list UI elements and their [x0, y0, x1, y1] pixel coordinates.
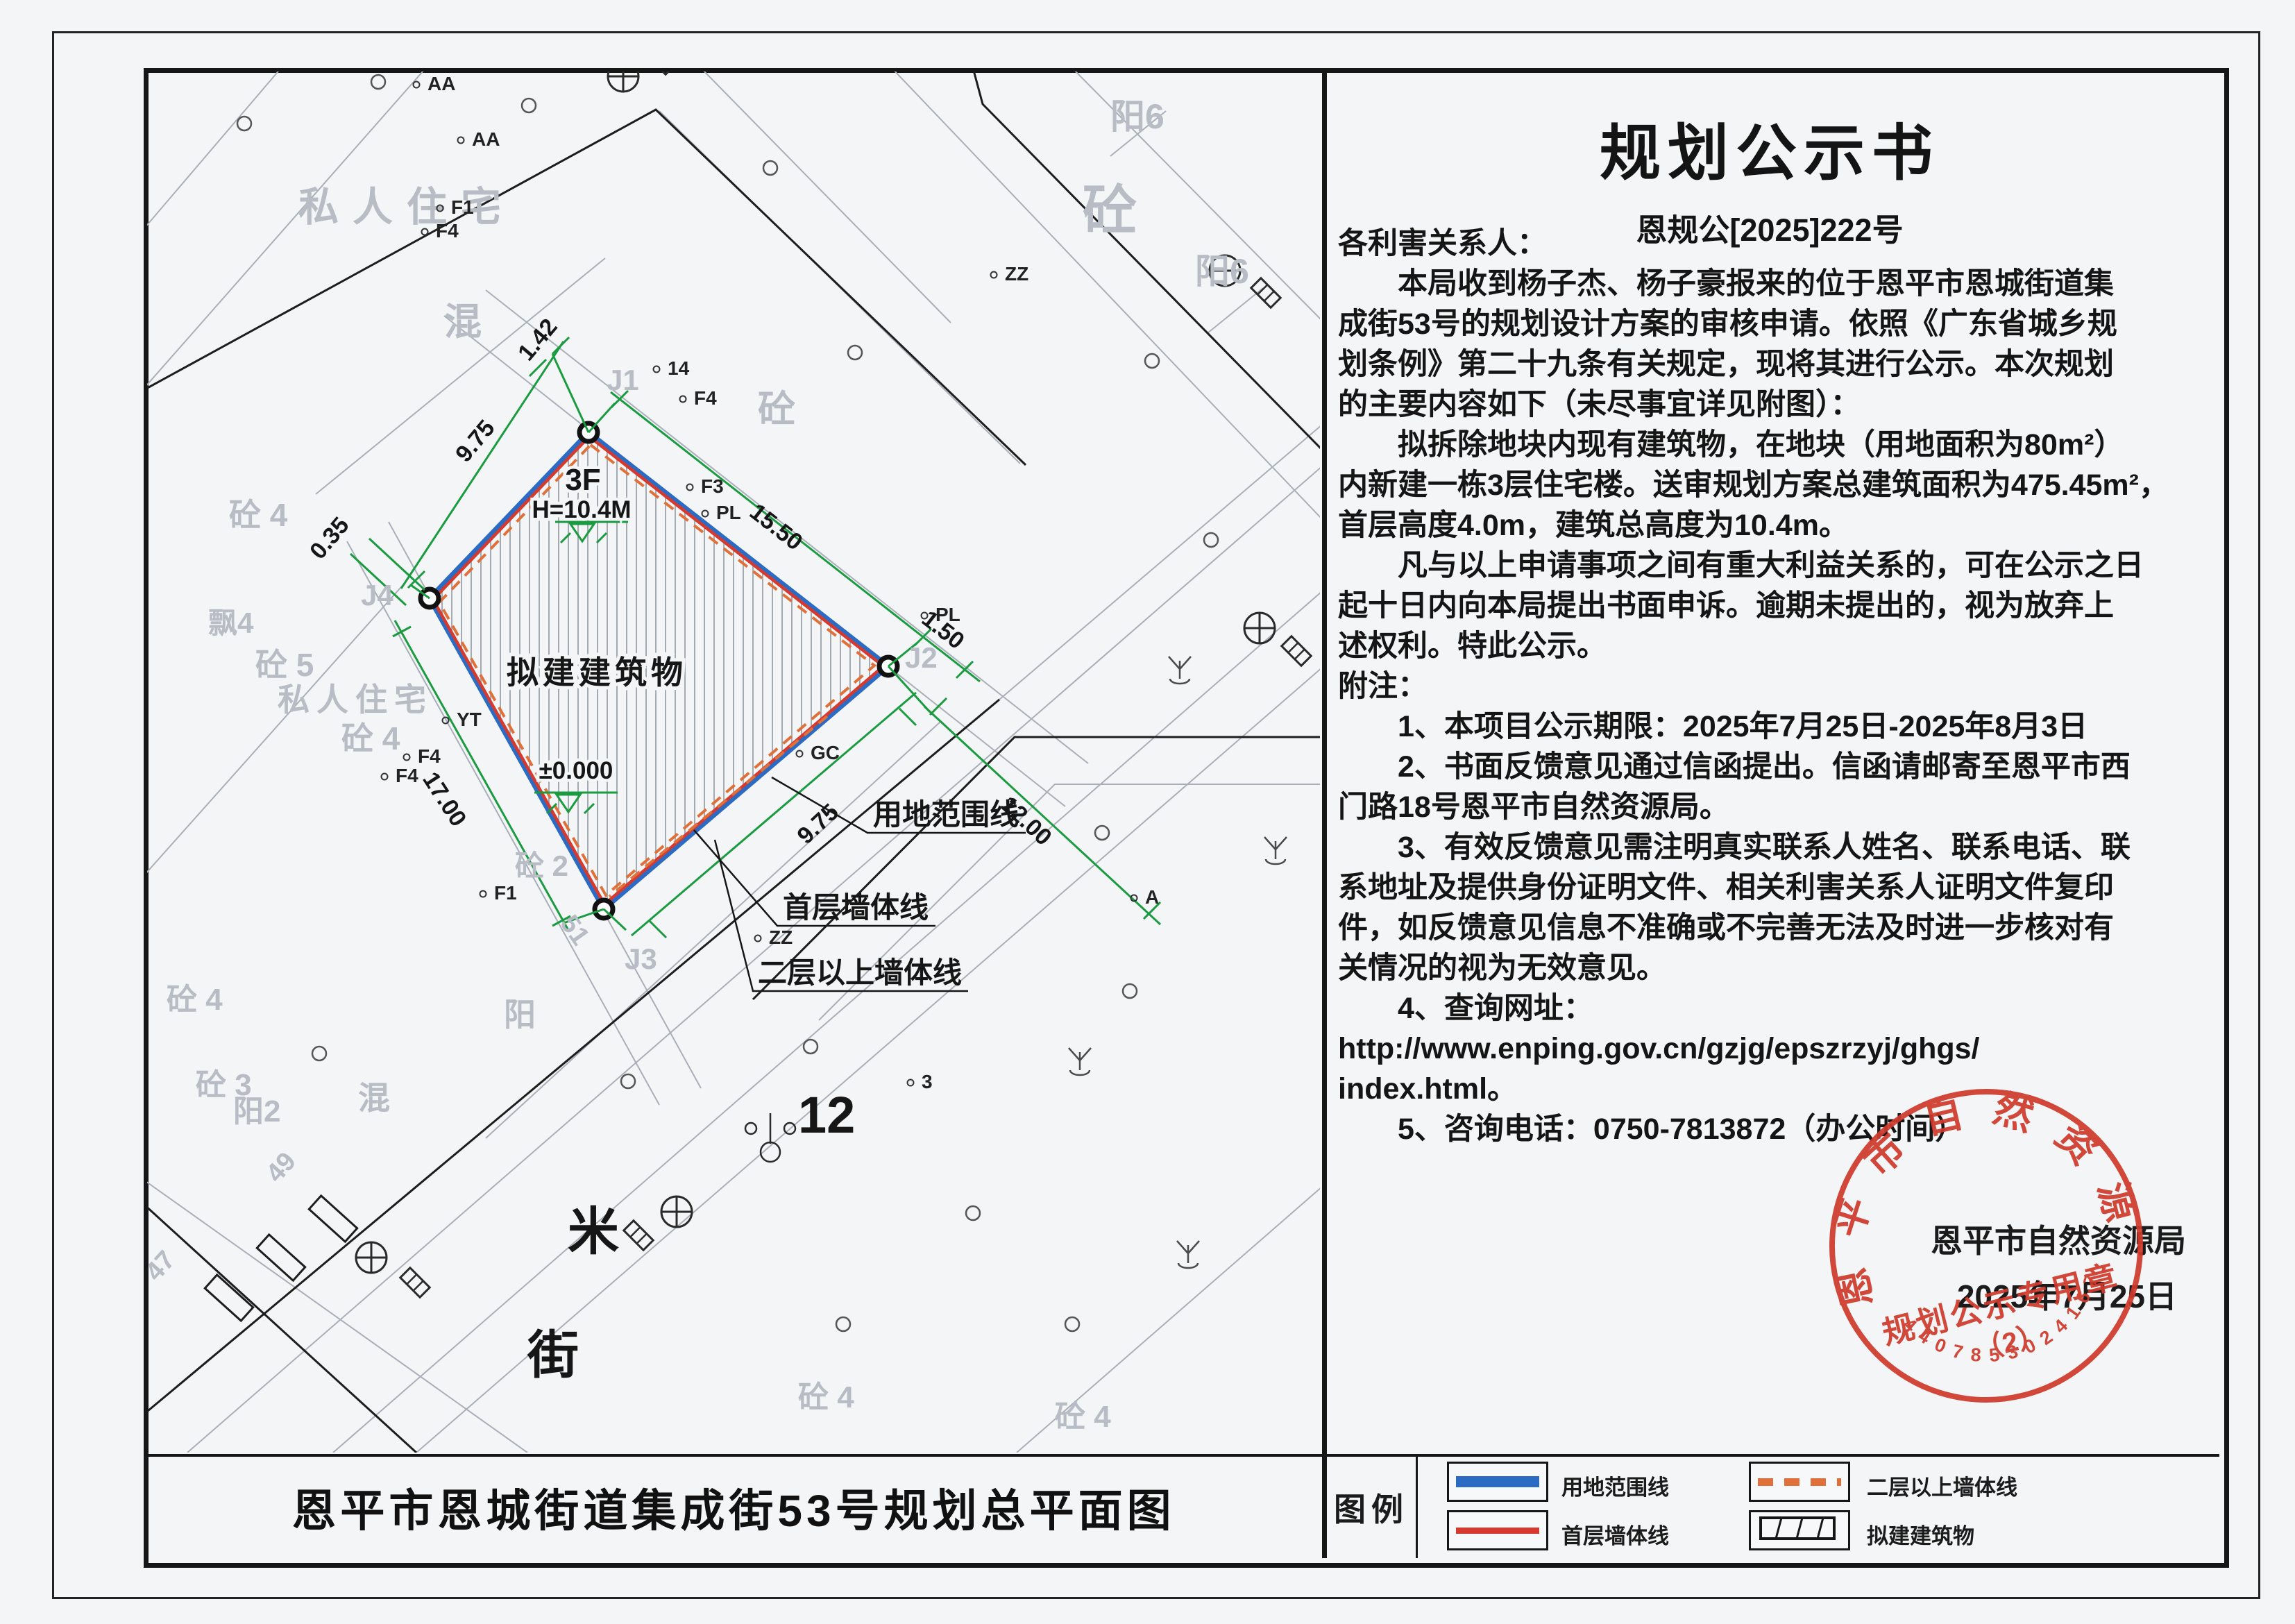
announcement-title: 规划公示书	[1336, 104, 2203, 192]
body-line: 件，如反馈意见信息不准确或不完善无法及时进一步核对有	[1338, 908, 2209, 948]
point-label: AA	[472, 128, 500, 150]
circle-icon	[522, 99, 536, 112]
manhole-icon	[661, 1196, 692, 1227]
announcement-body: 各利害关系人： 本局收到杨子杰、杨子豪报来的位于恩平市恩城街道集成街53号的规划…	[1338, 223, 2209, 1149]
point-label: F4	[396, 765, 418, 786]
body-line: 的主要内容如下（未尽事宜详见附图）：	[1338, 384, 2209, 425]
parcel-label: 私人住宅	[298, 185, 515, 230]
point-label: F4	[694, 387, 717, 409]
legend-header: 图例	[1327, 1457, 1416, 1558]
point-label: 14	[668, 357, 690, 379]
parcel-label: 49	[260, 1147, 302, 1188]
parcel-label: 私人住宅	[278, 682, 433, 718]
hatchsq-icon	[1282, 636, 1311, 666]
height-label: H=10.4M	[532, 496, 632, 523]
parcel-label: 阳2	[233, 1094, 280, 1128]
body-line: 成街53号的规划设计方案的审核申请。依照《广东省城乡规	[1338, 304, 2209, 344]
circle-icon	[763, 161, 777, 175]
point-label: F1	[451, 196, 474, 218]
circle-icon	[1065, 1317, 1079, 1331]
grass-icon	[1069, 1048, 1091, 1075]
legend-divider	[1416, 1457, 1418, 1558]
floors-label: 3F	[565, 463, 600, 497]
parcel-label: J4	[361, 579, 393, 611]
circle-icon	[1123, 984, 1137, 998]
parcel-label: 混	[444, 301, 482, 343]
hatchsq-icon	[646, 45, 675, 74]
circle-icon	[1204, 533, 1218, 547]
body-line: 3、有效反馈意见需注明真实联系人姓名、联系电话、联	[1338, 827, 2209, 868]
point-marker	[654, 366, 660, 373]
circle-icon	[1095, 826, 1109, 840]
point-label: 3	[922, 1071, 933, 1092]
map-text-label: 17.00	[417, 768, 471, 831]
body-line: 划条例》第二十九条有关规定，现将其进行公示。本次规划	[1338, 344, 2209, 384]
body-line: 首层高度4.0m，建筑总高度为10.4m。	[1338, 505, 2209, 545]
circle-icon	[804, 1040, 818, 1054]
map-text-label: 9.75	[450, 415, 500, 467]
map-text-label: 15.50	[745, 498, 807, 555]
hatchsq-icon	[624, 1221, 653, 1250]
point-marker	[991, 272, 997, 278]
grass-icon	[1177, 1241, 1199, 1268]
plan-title: 恩平市恩城街道集成街53号规划总平面图	[144, 1457, 1323, 1558]
grass-icon	[1169, 657, 1191, 684]
body-line: 起十日内向本局提出书面申诉。逾期未提出的，视为放弃上	[1338, 586, 2209, 626]
parcel-label: J3	[625, 942, 657, 975]
callout-first-floor-wall: 首层墙体线	[783, 891, 929, 924]
point-marker	[702, 511, 709, 517]
point-label: A	[1145, 886, 1159, 908]
point-marker	[480, 891, 486, 897]
map-text-label: 9.75	[793, 799, 844, 849]
point-label: GC	[811, 742, 840, 763]
point-label: PL	[935, 604, 960, 625]
point-marker	[680, 396, 686, 403]
body-line: 各利害关系人：	[1338, 223, 2209, 264]
body-line: 附注：	[1338, 666, 2209, 707]
body-line: 述权利。特此公示。	[1338, 626, 2209, 666]
parcel-label: 砼 2	[515, 849, 568, 882]
body-line: 本局收到杨子杰、杨子豪报来的位于恩平市恩城街道集	[1338, 264, 2209, 304]
map-text-label: 0.35	[305, 512, 355, 564]
body-line: 门路18号恩平市自然资源局。	[1338, 787, 2209, 827]
point-label: F3	[701, 475, 724, 497]
parcel-label: 砼	[1083, 180, 1137, 241]
body-line: 4、查询网址：	[1338, 988, 2209, 1029]
circle-icon	[836, 1317, 850, 1331]
parcel-label: 砼 4	[798, 1380, 854, 1414]
point-label: PL	[716, 502, 741, 523]
circle-icon	[312, 1047, 326, 1060]
map-text-label: 街	[527, 1326, 579, 1384]
parcel-label: 阳6	[1195, 252, 1249, 291]
point-marker	[797, 751, 803, 757]
callout-land-boundary: 用地范围线	[873, 798, 1019, 831]
point-label: YT	[457, 709, 482, 730]
parcel-label: J2	[905, 641, 938, 674]
parcel-label: 砼 5	[255, 647, 314, 683]
body-line: 1、本项目公示期限：2025年7月25日-2025年8月3日	[1338, 707, 2209, 747]
parcel-label: 47	[139, 1245, 181, 1287]
building-label: 拟建建筑物	[507, 654, 687, 691]
parcel-label: 砼 4	[167, 983, 223, 1017]
point-marker	[414, 82, 420, 88]
body-line: 2、书面反馈意见通过信函提出。信函请邮寄至恩平市西	[1338, 747, 2209, 787]
point-label: ZZ	[769, 927, 793, 948]
point-marker	[382, 774, 388, 780]
hatchsq-icon	[1251, 278, 1280, 307]
parcel-label: 砼	[758, 389, 795, 430]
level-label: ±0.000	[539, 757, 613, 784]
circle-icon	[848, 346, 862, 360]
body-line: 系地址及提供身份证明文件、相关利害关系人证明文件复印	[1338, 868, 2209, 908]
point-label: F4	[436, 220, 459, 242]
point-label: ZZ	[1005, 263, 1028, 285]
parcel-label: 混	[358, 1080, 390, 1116]
point-label: F4	[418, 745, 441, 767]
point-marker	[755, 936, 761, 942]
point-label: AA	[427, 73, 455, 94]
manhole-icon	[1244, 613, 1275, 643]
body-line: 凡与以上申请事项之间有重大利益关系的，可在公示之日	[1338, 545, 2209, 586]
point-marker	[908, 1080, 914, 1086]
parcel-label: 砼 4	[341, 720, 400, 756]
parcel-label: 飘4	[208, 607, 254, 639]
parcel-label: 砼 4	[229, 497, 288, 533]
point-label: F1	[494, 882, 517, 904]
parcel-label: 阳6	[1110, 97, 1165, 136]
body-line: 内新建一栋3层住宅楼。送审规划方案总建筑面积为475.45m²，	[1338, 465, 2209, 505]
circle-icon	[237, 117, 251, 130]
manhole-icon	[356, 1242, 387, 1273]
official-stamp: 恩平市自然资源局 规划公示专用章 （2） 4407853024167	[1784, 1044, 2200, 1461]
hatchsq-icon	[400, 1268, 430, 1297]
parcel-label: J1	[607, 364, 639, 396]
grass-icon	[1264, 837, 1287, 864]
body-line: 关情况的视为无效意见。	[1338, 948, 2209, 988]
map-text-label: 12	[798, 1086, 855, 1144]
point-marker	[404, 754, 410, 761]
parcel-label: 砼 4	[1055, 1400, 1111, 1434]
point-marker	[458, 137, 464, 144]
callout-upper-wall: 二层以上墙体线	[758, 956, 962, 989]
body-line: 拟拆除地块内现有建筑物，在地块（用地面积为80m²）	[1338, 425, 2209, 465]
parcel-label: 阳	[504, 997, 536, 1033]
circle-icon	[966, 1206, 980, 1220]
circle-icon	[621, 1074, 635, 1088]
circle-icon	[371, 75, 385, 89]
map-text-label: 米	[568, 1203, 619, 1260]
circle-icon	[1145, 354, 1159, 368]
manhole-icon	[608, 61, 638, 92]
point-marker	[687, 484, 693, 491]
